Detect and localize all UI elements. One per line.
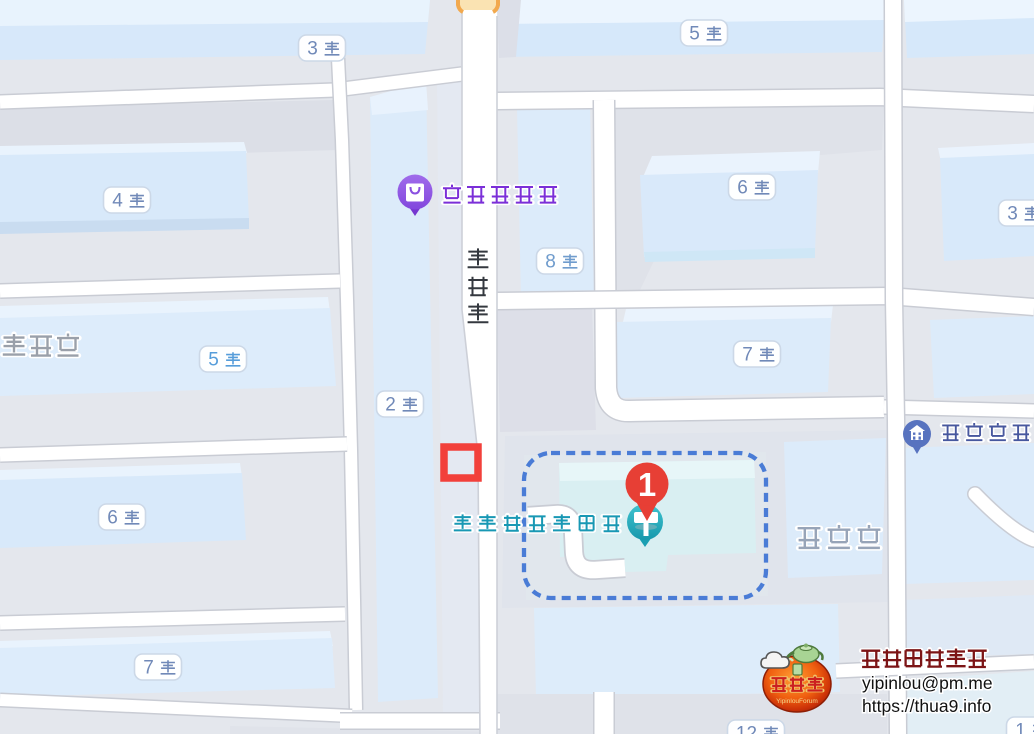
svg-text:5: 5 (689, 24, 700, 45)
svg-text:8: 8 (545, 252, 556, 273)
svg-text:YipinlouForum: YipinlouForum (776, 698, 818, 705)
svg-text:7: 7 (742, 345, 753, 366)
svg-text:https://thua9.info: https://thua9.info (862, 696, 991, 716)
svg-text:1: 1 (638, 466, 656, 503)
svg-text:6: 6 (107, 508, 118, 529)
svg-text:3: 3 (307, 39, 318, 60)
svg-text:7: 7 (143, 658, 154, 679)
svg-text:5: 5 (208, 350, 219, 371)
svg-text:2: 2 (385, 395, 396, 416)
svg-text:3: 3 (1007, 204, 1018, 225)
svg-text:1: 1 (1015, 721, 1026, 735)
svg-text:6: 6 (737, 178, 748, 199)
svg-text:yipinlou@pm.me: yipinlou@pm.me (862, 673, 993, 693)
svg-text:4: 4 (112, 191, 123, 212)
svg-text:12: 12 (736, 724, 757, 735)
